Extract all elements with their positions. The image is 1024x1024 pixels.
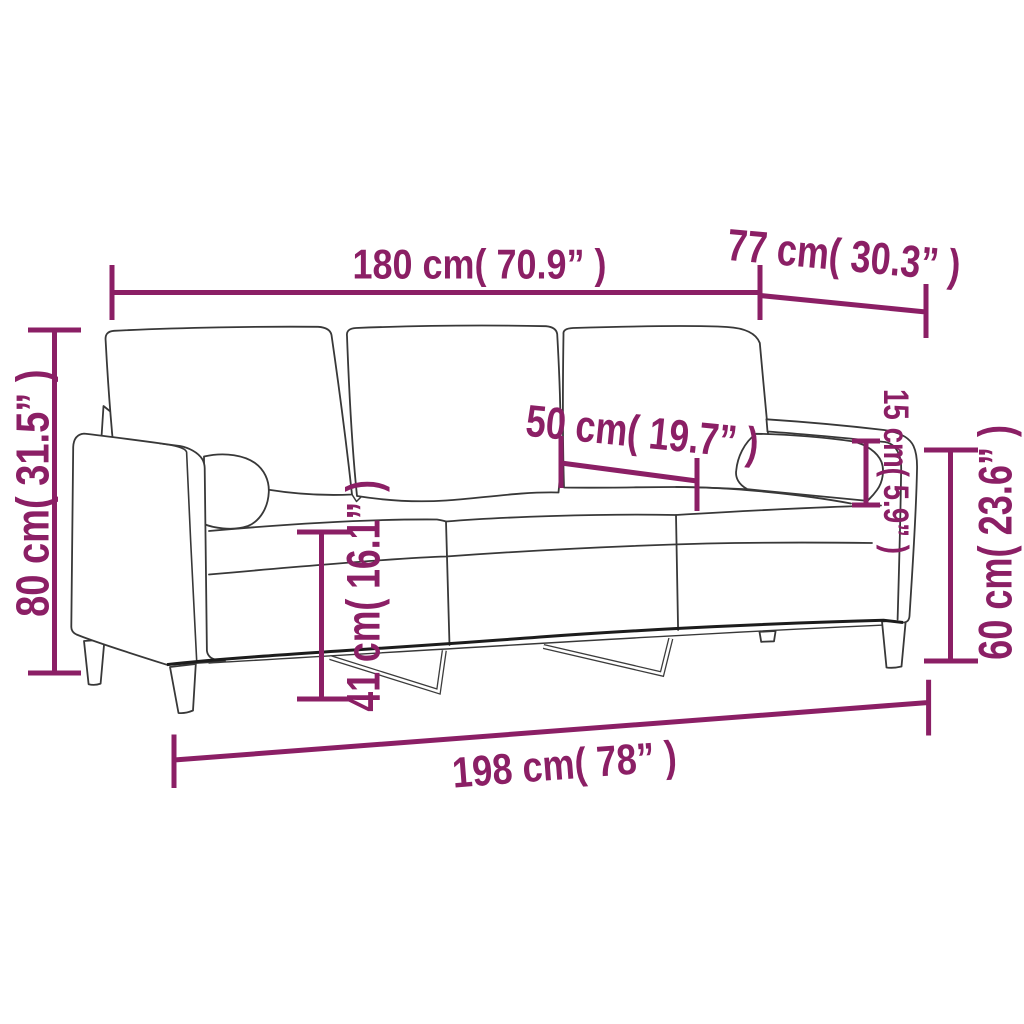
svg-text:60 cm( 23.6” ): 60 cm( 23.6” ): [968, 425, 1021, 660]
svg-text:180 cm( 70.9” ): 180 cm( 70.9” ): [353, 241, 607, 288]
svg-text:80 cm( 31.5” ): 80 cm( 31.5” ): [7, 369, 59, 617]
svg-text:41 cm( 16.1” ): 41 cm( 16.1” ): [337, 480, 390, 712]
svg-text:15 cm( 5.9” ): 15 cm( 5.9” ): [876, 389, 915, 554]
